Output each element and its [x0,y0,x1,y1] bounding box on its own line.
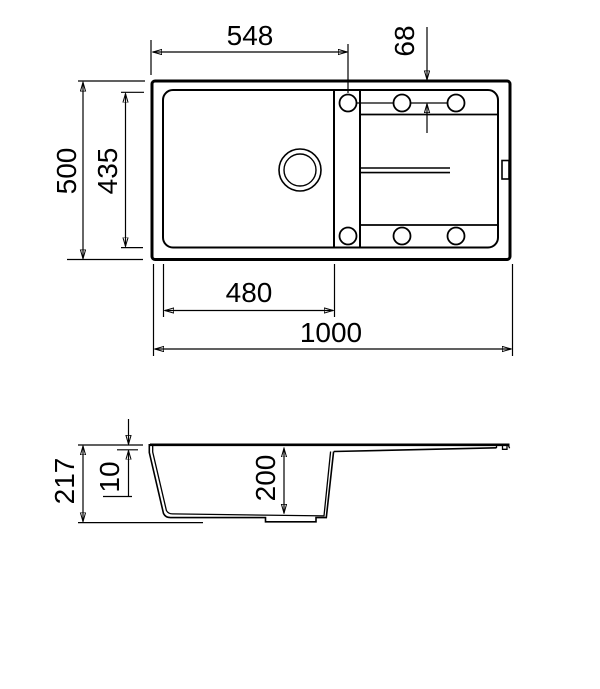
faucet-hole [340,228,357,245]
top-view [152,81,510,260]
dim-435: 435 [92,92,144,247]
bowl-profile-inner [153,444,331,516]
dimension-label: 480 [226,277,273,308]
side-view [149,444,509,522]
dim-480: 480 [164,264,335,317]
dimension-label: 10 [94,461,125,492]
dimension-label: 500 [51,148,82,195]
faucet-hole [394,228,411,245]
dim-68: 68 [389,25,427,133]
dimension-label: 548 [227,20,274,51]
dim-217: 217 [49,445,203,523]
drawing-canvas: 548 68 500 435 480 1000 [0,0,600,689]
faucet-hole [340,95,357,112]
sink-technical-drawing: 548 68 500 435 480 1000 [0,0,600,689]
bowl-profile-outer [149,444,333,522]
dim-200: 200 [250,448,284,513]
drainboard-slope-line [334,448,497,452]
faucet-hole [448,228,465,245]
drain-outline-outer [279,149,321,191]
dimension-label: 68 [389,25,420,56]
dim-10: 10 [94,419,138,497]
dimension-label: 217 [49,458,80,505]
faucet-hole [394,95,411,112]
dimension-label: 200 [250,455,281,502]
dimension-label: 435 [92,148,123,195]
overflow-notch [502,161,509,180]
drain-outline-inner [284,154,316,186]
dimension-label: 1000 [300,317,362,348]
faucet-hole [448,95,465,112]
